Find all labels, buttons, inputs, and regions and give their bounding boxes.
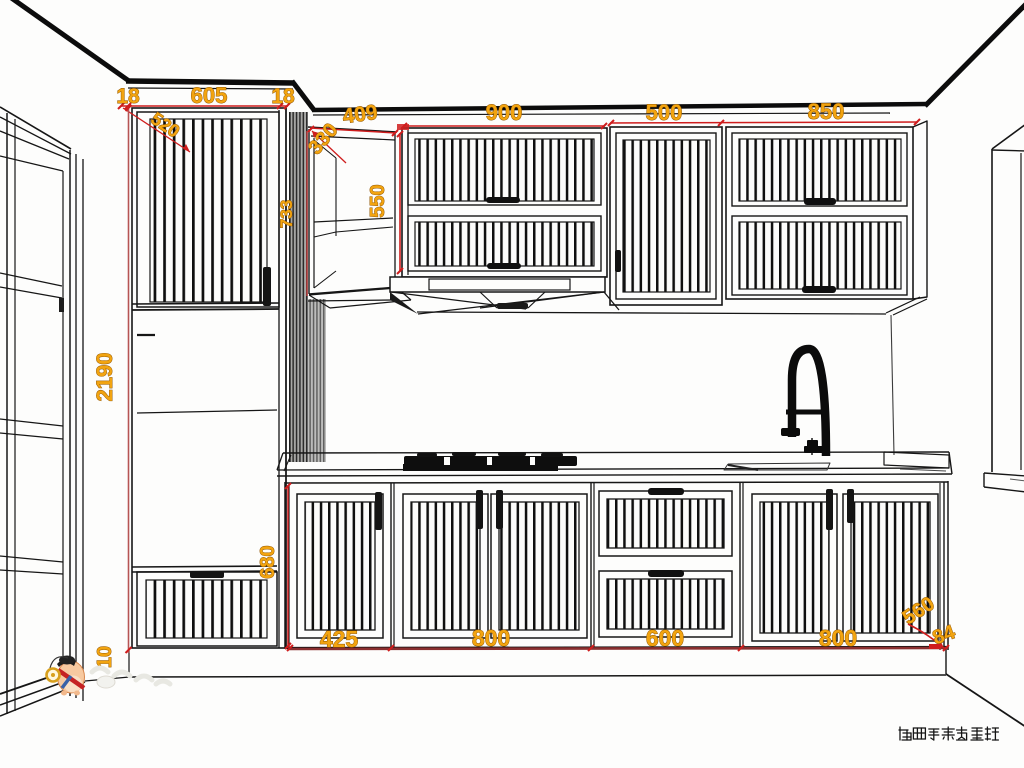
svg-text:680: 680 bbox=[257, 545, 279, 578]
svg-text:2190: 2190 bbox=[92, 353, 117, 402]
svg-text:800: 800 bbox=[819, 625, 857, 651]
svg-text:409: 409 bbox=[341, 101, 379, 129]
svg-text:600: 600 bbox=[646, 625, 684, 651]
svg-text:900: 900 bbox=[486, 100, 523, 125]
svg-text:605: 605 bbox=[191, 83, 228, 108]
svg-text:18: 18 bbox=[271, 85, 295, 108]
svg-text:18: 18 bbox=[116, 85, 140, 108]
svg-text:500: 500 bbox=[646, 100, 683, 125]
svg-text:733: 733 bbox=[277, 200, 296, 228]
svg-text:425: 425 bbox=[320, 626, 359, 652]
svg-text:550: 550 bbox=[367, 184, 389, 217]
svg-text:850: 850 bbox=[808, 99, 845, 124]
svg-text:10: 10 bbox=[94, 646, 116, 668]
svg-text:800: 800 bbox=[472, 625, 510, 651]
